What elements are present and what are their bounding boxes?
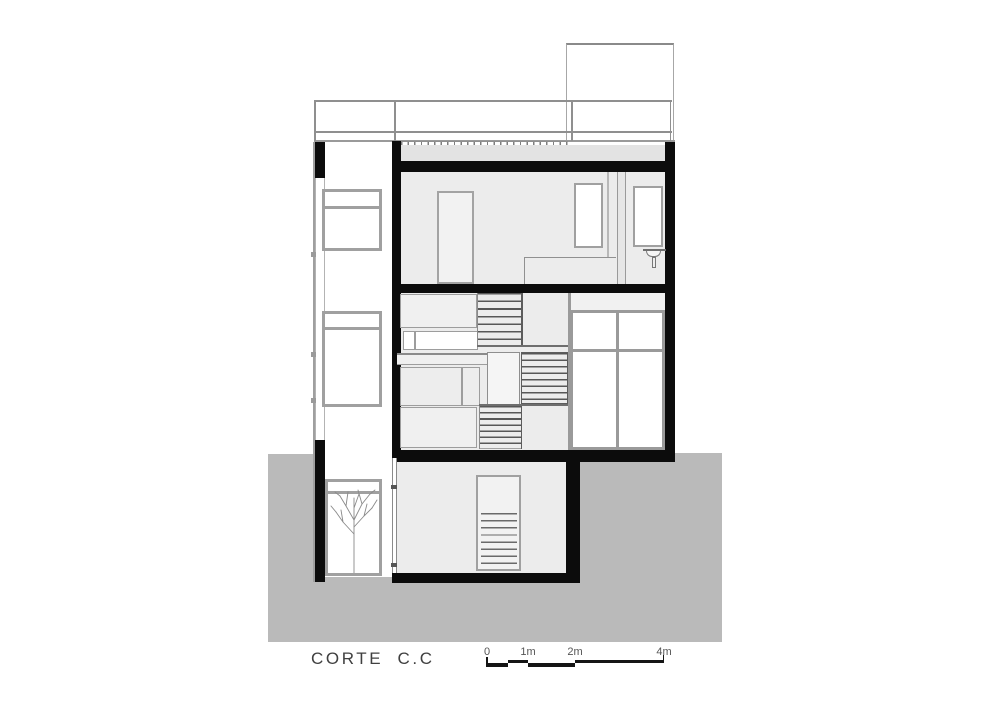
railing-post xyxy=(571,101,573,141)
scale-end-tick xyxy=(663,655,665,660)
cabinet-divider-line xyxy=(461,368,463,405)
railing-post xyxy=(314,101,316,141)
ground-left xyxy=(268,454,313,642)
railing-top-rail xyxy=(314,100,672,102)
window-transom-bar xyxy=(325,206,379,209)
courtyard-glass-door xyxy=(325,479,382,576)
basement-floor-slab xyxy=(392,573,580,583)
stair-flight-lower xyxy=(479,406,522,449)
scale-segment xyxy=(575,660,664,664)
glazing-mullion xyxy=(616,313,619,447)
wing-joint-tick xyxy=(311,352,316,357)
bedroom-door xyxy=(437,191,474,284)
bathroom-partition-wall xyxy=(617,172,626,284)
cut-wall-right xyxy=(665,142,675,462)
bed-headboard xyxy=(524,257,616,284)
ground-right xyxy=(675,453,722,642)
stair-core-wall xyxy=(487,352,520,407)
railing-mid-rail xyxy=(314,131,672,133)
basement-glazed-wall-cut xyxy=(392,458,397,575)
kitchen-island xyxy=(400,407,477,448)
window-transom-bar xyxy=(325,327,379,330)
wing-joint-tick xyxy=(311,252,316,257)
wing-joint-tick xyxy=(311,398,316,403)
kitchen-countertop xyxy=(397,353,488,365)
ground-under-wing-wall xyxy=(313,582,325,642)
scale-tick-label-2m: 2m xyxy=(567,646,582,658)
stair-flight-upper xyxy=(477,293,523,346)
scale-tick-label-4m: 4m xyxy=(656,646,671,658)
scale-bar: 0 1m 2m 4m xyxy=(480,644,680,669)
railing-post xyxy=(670,101,672,141)
scale-segment xyxy=(528,663,575,667)
second-floor-slab xyxy=(392,284,675,293)
architectural-section-drawing: CORTE C.C 0 1m 2m 4m xyxy=(0,0,1000,707)
glazing-joint-tick xyxy=(391,485,397,489)
bedroom-window xyxy=(574,183,603,248)
ground-right-of-basement xyxy=(580,462,675,642)
wing-parapet-wall xyxy=(315,142,325,178)
basement-wall-right xyxy=(566,462,580,583)
ground-floor-slab xyxy=(392,450,675,462)
bathroom-window xyxy=(633,186,663,247)
ground-under-courtyard xyxy=(325,577,392,642)
kitchen-base-cabinet xyxy=(400,367,480,406)
basement-stair-flight xyxy=(481,513,517,570)
sink-pedestal xyxy=(652,257,656,268)
roof-slab xyxy=(392,161,675,172)
kitchen-backsplash-right xyxy=(415,331,478,350)
roof-screed-layer xyxy=(400,145,666,161)
window-head-band xyxy=(571,293,665,310)
roof-bulkhead-box xyxy=(566,43,674,141)
kitchen-upper-cabinet xyxy=(400,294,477,328)
drawing-title: CORTE C.C xyxy=(311,649,435,669)
scale-segment xyxy=(508,660,528,664)
stair-flight-middle xyxy=(521,352,568,404)
glazing-transom xyxy=(573,349,662,352)
ground-under-basement xyxy=(392,583,580,642)
wing-base-wall xyxy=(315,440,325,582)
sink-icon xyxy=(643,249,666,269)
tree-icon xyxy=(328,482,379,573)
kitchen-backsplash-left xyxy=(403,331,415,350)
wing-window-lower xyxy=(322,311,382,407)
glazing-joint-tick xyxy=(391,563,397,567)
living-glazed-wall xyxy=(570,310,665,450)
wing-window-upper xyxy=(322,189,382,251)
railing-post xyxy=(394,101,396,141)
stair-landing-line-upper xyxy=(477,345,569,347)
scale-segment xyxy=(486,663,508,667)
scale-tick-label-1m: 1m xyxy=(520,646,535,658)
